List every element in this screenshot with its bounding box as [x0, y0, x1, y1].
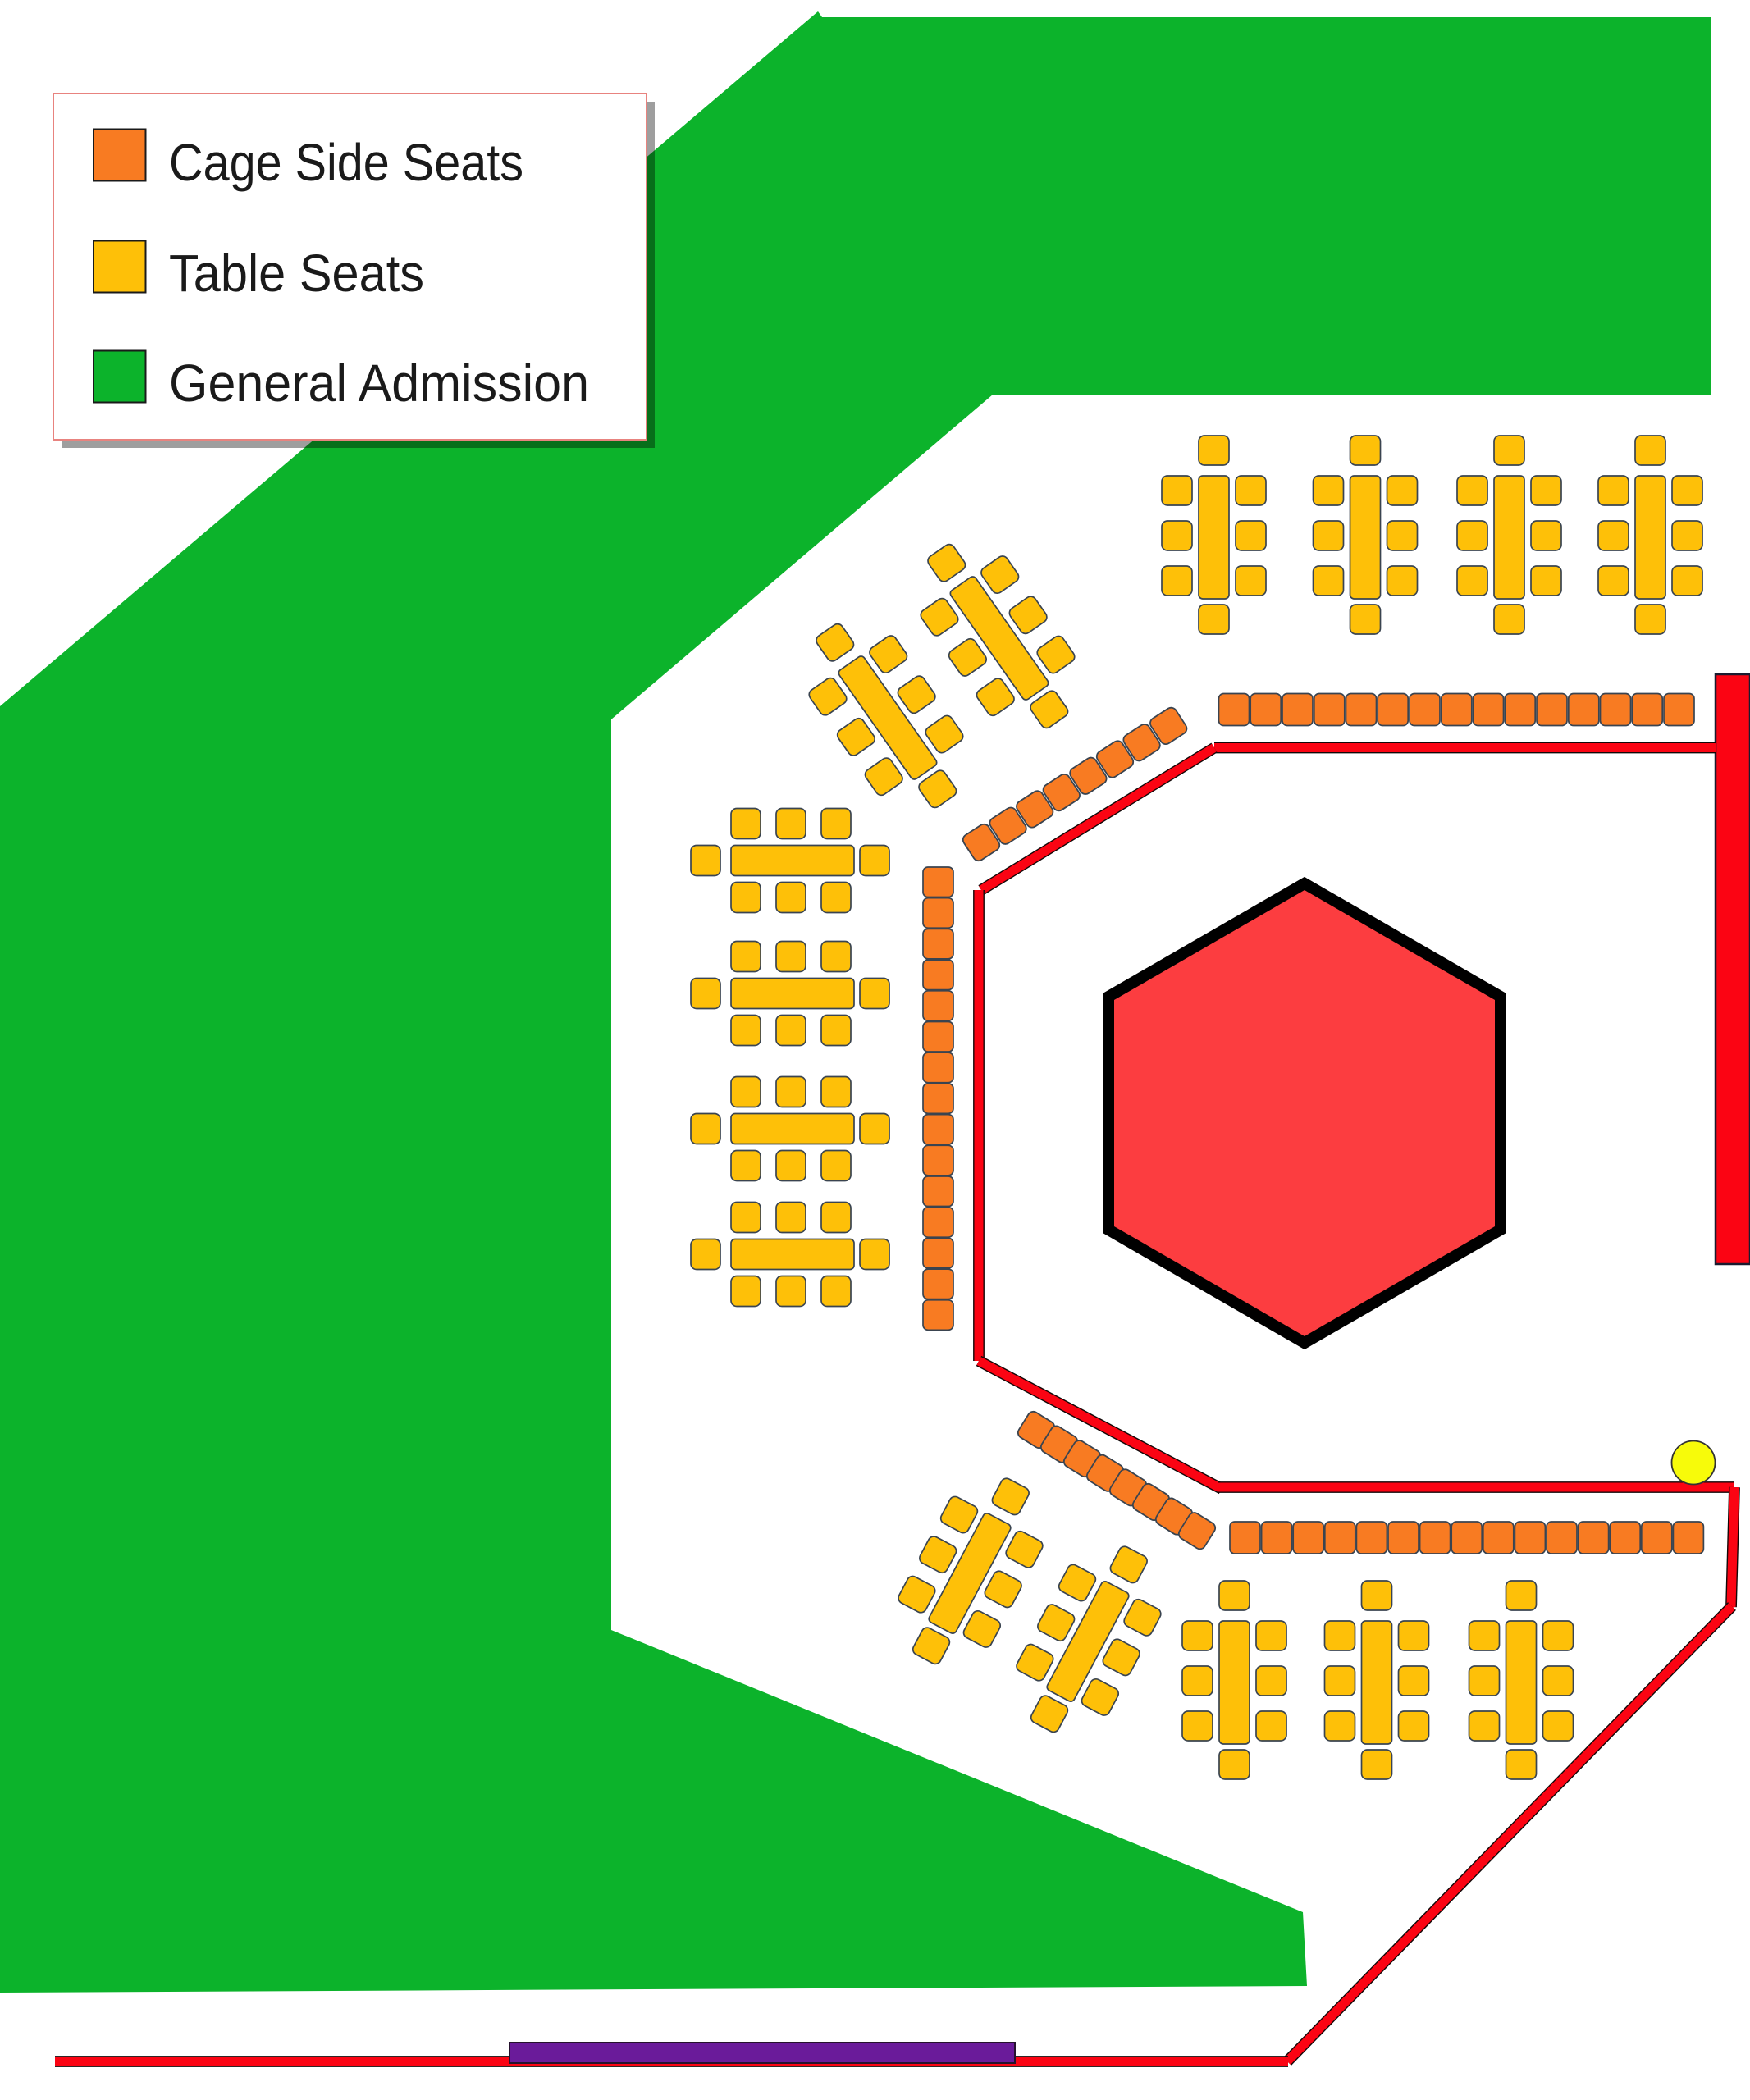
- svg-text:Cage Side Seats: Cage Side Seats: [169, 133, 523, 192]
- svg-text:Table Seats: Table Seats: [169, 244, 424, 303]
- svg-text:General Admission: General Admission: [169, 354, 589, 413]
